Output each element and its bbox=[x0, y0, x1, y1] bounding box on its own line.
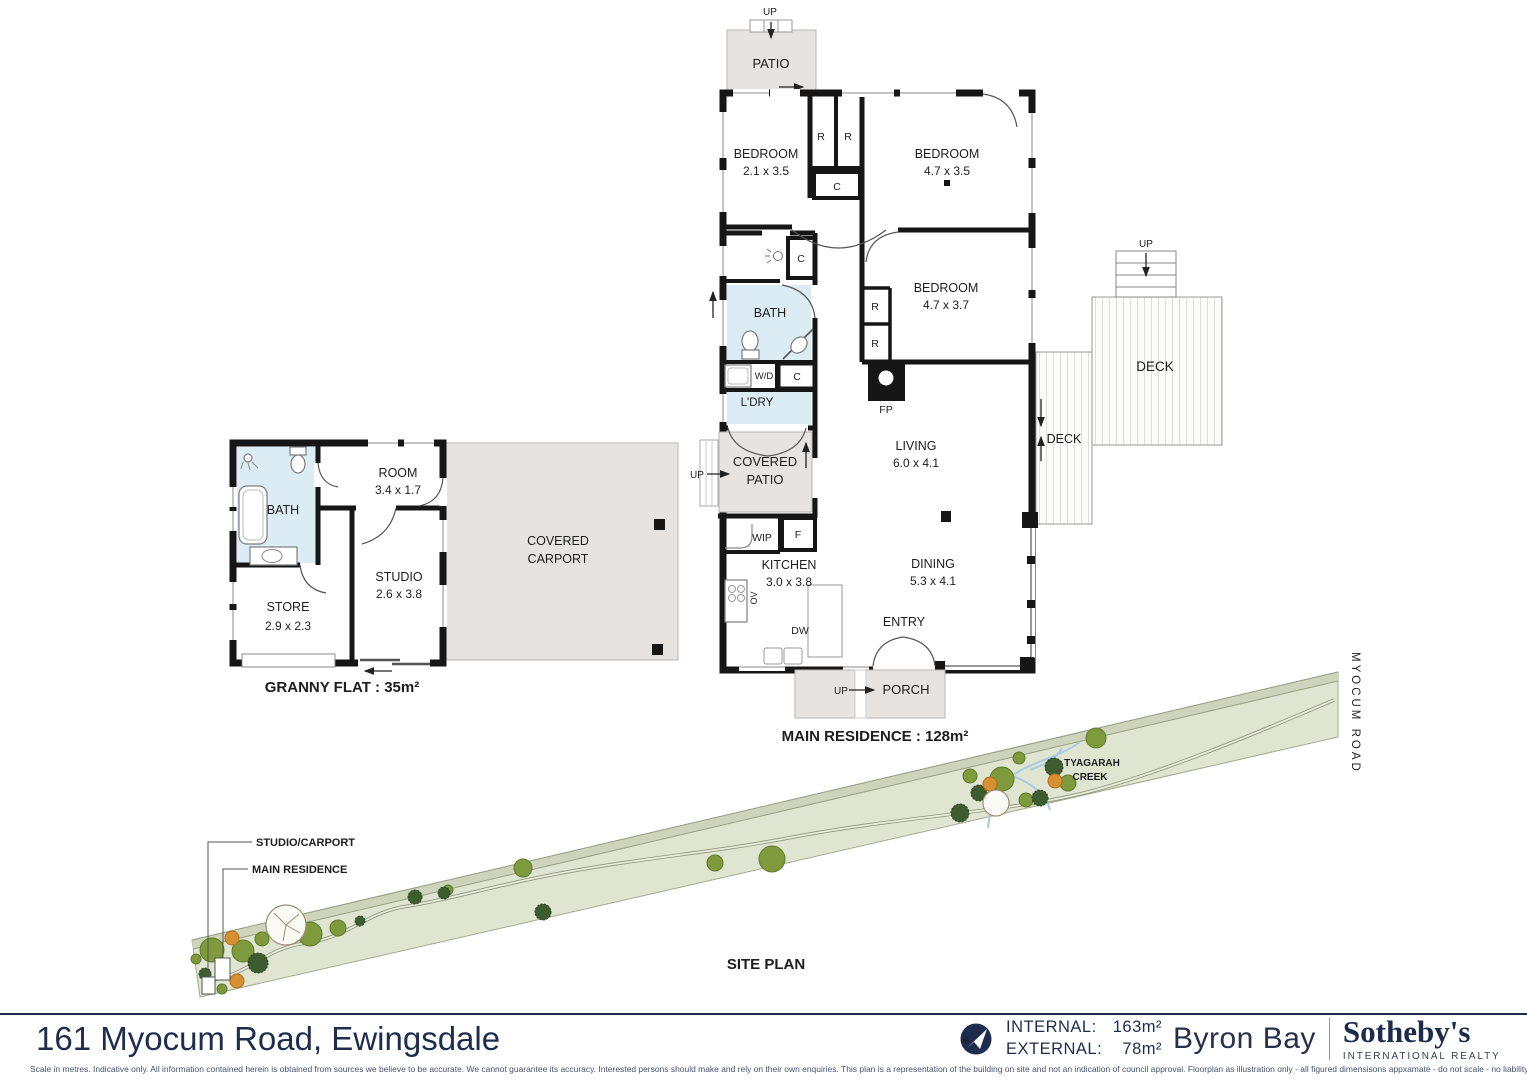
granny-flat-caption: GRANNY FLAT : 35m² bbox=[265, 679, 419, 696]
agency-brand: Byron Bay Sotheby's INTERNATIONAL REALTY bbox=[1173, 1016, 1501, 1062]
oven-label: OV bbox=[749, 591, 759, 604]
carport-label-2: CARPORT bbox=[528, 552, 589, 566]
creek-label-2: CREEK bbox=[1072, 772, 1108, 783]
brand-divider bbox=[1329, 1018, 1330, 1060]
granny-store-label: STORE bbox=[267, 600, 310, 614]
creek-label-1: TYAGARAH bbox=[1064, 758, 1120, 769]
brand-sothebys: Sotheby's bbox=[1343, 1016, 1501, 1047]
granny-flat-plan: BATH ROOM 3.4 x 1.7 STUDIO 2.6 x 3.8 STO… bbox=[229, 439, 678, 696]
store-window bbox=[242, 654, 335, 667]
robe-label: R bbox=[871, 338, 879, 350]
floorplan-canvas: BATH ROOM 3.4 x 1.7 STUDIO 2.6 x 3.8 STO… bbox=[0, 0, 1527, 1012]
porch-label: PORCH bbox=[883, 682, 930, 697]
property-address: 161 Myocum Road, Ewingsdale bbox=[36, 1020, 500, 1058]
site-plan: STUDIO/CARPORT MAIN RESIDENCE TYAGARAH C… bbox=[191, 652, 1361, 997]
bedroom2-dims: 4.7 x 3.5 bbox=[924, 164, 970, 178]
robe-label: R bbox=[871, 301, 879, 313]
robe-walls bbox=[862, 288, 890, 362]
site-plan-title: SITE PLAN bbox=[727, 956, 805, 973]
granny-studio-label: STUDIO bbox=[375, 570, 423, 584]
internal-label: INTERNAL: bbox=[1006, 1018, 1104, 1037]
compass-icon: N bbox=[958, 1021, 994, 1057]
closet-label: C bbox=[833, 181, 841, 193]
site-main-residence bbox=[215, 958, 230, 980]
patio-label: PATIO bbox=[752, 56, 789, 71]
footer-divider bbox=[0, 1013, 1527, 1015]
bedroom1-label: BEDROOM bbox=[734, 147, 799, 161]
studio-door-arc bbox=[362, 508, 396, 544]
deck-large-label: DECK bbox=[1136, 359, 1174, 374]
floorplan-page: BATH ROOM 3.4 x 1.7 STUDIO 2.6 x 3.8 STO… bbox=[0, 0, 1527, 1080]
disclaimer-text: Scale in metres. Indicative only. All in… bbox=[30, 1064, 1503, 1074]
external-label: EXTERNAL: bbox=[1006, 1040, 1104, 1059]
covered-patio-label-1: COVERED bbox=[733, 454, 797, 469]
main-residence-caption: MAIN RESIDENCE : 128m² bbox=[782, 728, 969, 745]
internal-area-row: INTERNAL: 163m² bbox=[1006, 1018, 1162, 1037]
carport-label-1: COVERED bbox=[527, 534, 589, 548]
entry-label: ENTRY bbox=[883, 615, 926, 629]
living-dims: 6.0 x 4.1 bbox=[893, 456, 939, 470]
bedroom3-label: BEDROOM bbox=[914, 281, 979, 295]
patio-up-label: UP bbox=[763, 7, 777, 18]
covered-patio-label-2: PATIO bbox=[746, 472, 783, 487]
robe-label: R bbox=[817, 131, 825, 143]
site-studio-carport-label: STUDIO/CARPORT bbox=[256, 837, 355, 849]
robe-label: R bbox=[844, 131, 852, 143]
brand-byron-bay: Byron Bay bbox=[1173, 1016, 1316, 1056]
kitchen-label: KITCHEN bbox=[762, 558, 817, 572]
porch-up-label: UP bbox=[834, 686, 848, 697]
bedroom3-door-arc bbox=[866, 232, 898, 262]
site-road-band bbox=[192, 672, 1338, 949]
wip-shelf bbox=[725, 524, 752, 548]
bedroom2-door-arc bbox=[983, 94, 1017, 127]
area-metrics: N INTERNAL: 163m² EXTERNAL: 78m² bbox=[958, 1018, 1162, 1059]
granny-studio-dims: 2.6 x 3.8 bbox=[376, 587, 422, 601]
living-label: LIVING bbox=[896, 439, 937, 453]
wd-label: W/D bbox=[755, 371, 774, 382]
main-residence-plan: UP PATIO BEDROOM 2.1 x 3.5 R R C BEDROOM… bbox=[690, 7, 1222, 745]
porch-steps bbox=[855, 670, 866, 718]
laundry-label: L'DRY bbox=[741, 397, 774, 409]
deck-small-label: DECK bbox=[1047, 432, 1082, 446]
site-studio-carport bbox=[202, 977, 215, 994]
bedroom1-dims: 2.1 x 3.5 bbox=[743, 164, 789, 178]
carport-post bbox=[654, 519, 665, 530]
closet-label: C bbox=[797, 253, 805, 265]
store-door-arc bbox=[300, 565, 326, 593]
external-value: 78m² bbox=[1104, 1040, 1162, 1059]
deck-up-label: UP bbox=[1139, 239, 1153, 250]
granny-room-dims: 3.4 x 1.7 bbox=[375, 483, 421, 497]
covered-patio-up-label: UP bbox=[690, 470, 704, 481]
fridge-label: F bbox=[795, 529, 801, 541]
kitchen-dims: 3.0 x 3.8 bbox=[766, 575, 812, 589]
carport-post bbox=[652, 644, 663, 655]
bath-label: BATH bbox=[754, 306, 786, 320]
dishwasher-label: DW bbox=[791, 625, 809, 637]
external-area-row: EXTERNAL: 78m² bbox=[1006, 1040, 1162, 1059]
internal-value: 163m² bbox=[1104, 1018, 1162, 1037]
road-label: MYOCUM ROAD bbox=[1349, 652, 1361, 774]
dining-label: DINING bbox=[911, 557, 955, 571]
brand-sothebys-sub: INTERNATIONAL REALTY bbox=[1343, 1051, 1501, 1062]
fireplace-label: FP bbox=[879, 404, 892, 416]
granny-room-label: ROOM bbox=[379, 466, 418, 480]
site-main-residence-label: MAIN RESIDENCE bbox=[252, 864, 347, 876]
closet-label: C bbox=[793, 371, 801, 383]
bedroom3-dims: 4.7 x 3.7 bbox=[923, 298, 969, 312]
bedroom2-label: BEDROOM bbox=[915, 147, 980, 161]
dining-dims: 5.3 x 4.1 bbox=[910, 574, 956, 588]
kitchen-island bbox=[808, 585, 842, 657]
wip-label: WIP bbox=[752, 532, 772, 544]
granny-bath-label: BATH bbox=[267, 503, 299, 517]
entry-door-arcs bbox=[873, 637, 935, 666]
granny-store-dims: 2.9 x 2.3 bbox=[265, 619, 311, 633]
